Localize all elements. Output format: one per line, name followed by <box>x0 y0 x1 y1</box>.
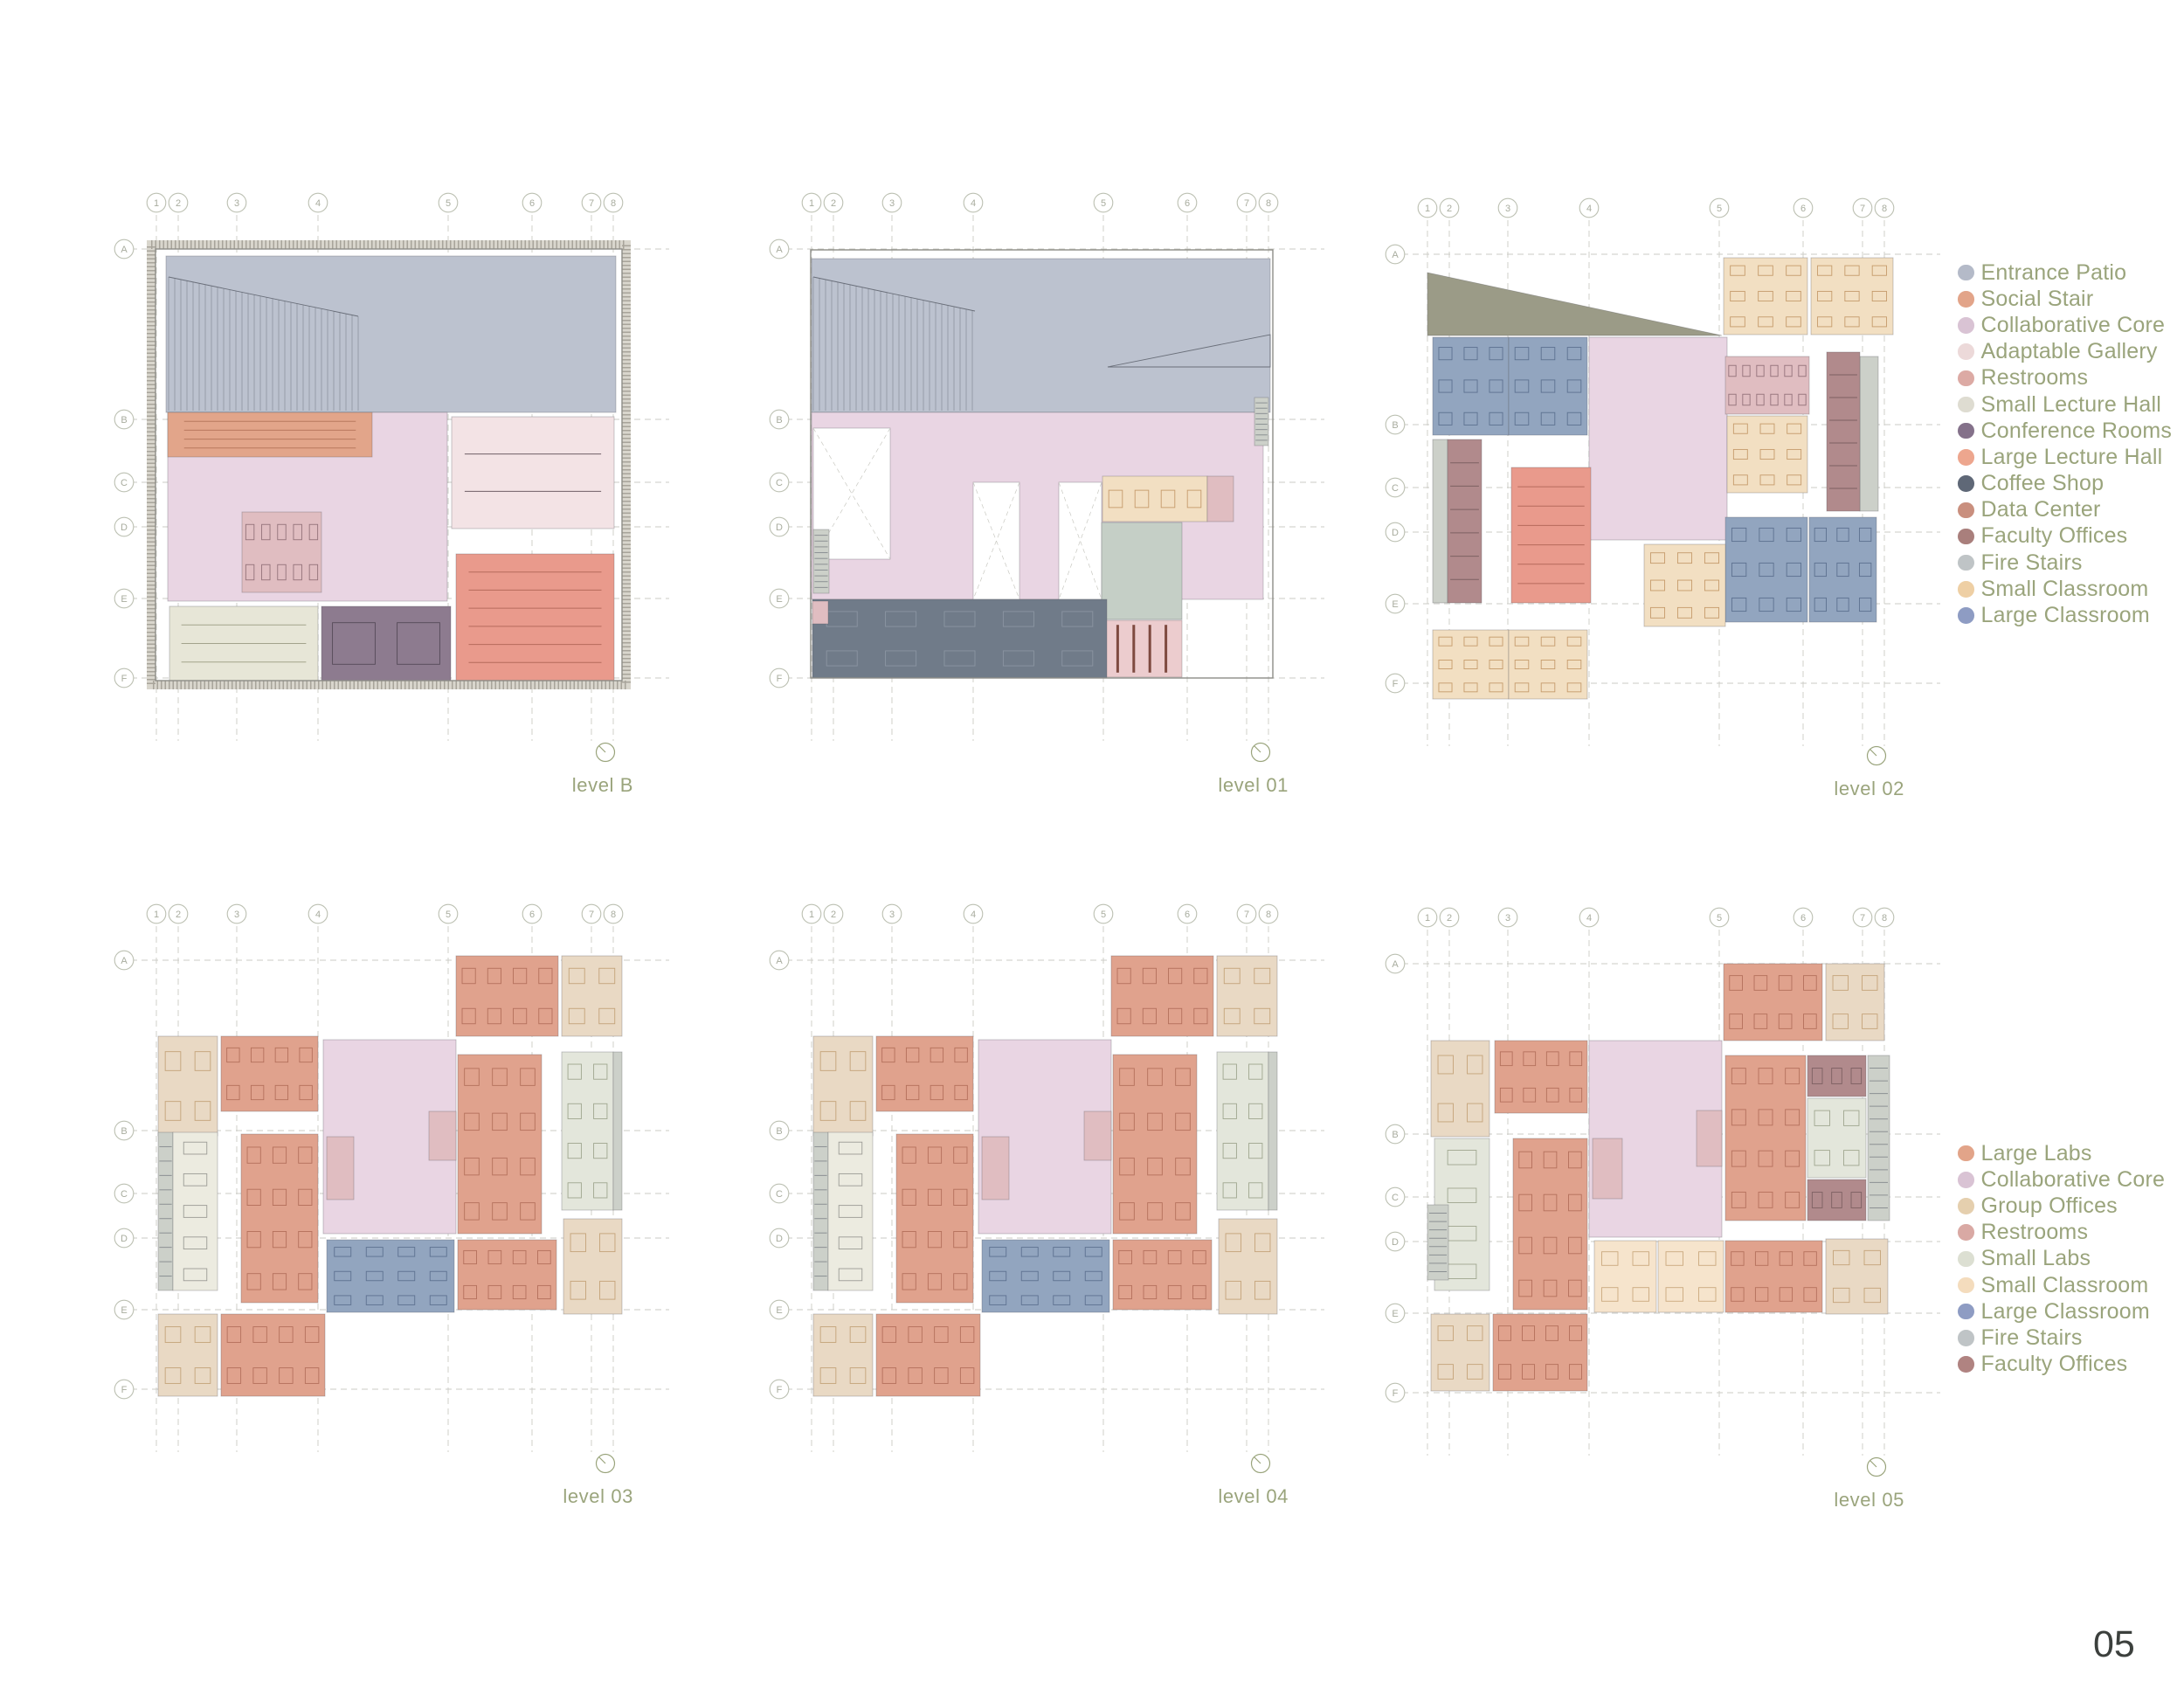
large-labs-color-dot <box>1958 1145 1974 1162</box>
group-offices-zone <box>158 1314 218 1396</box>
restrooms-zone <box>327 1137 354 1200</box>
collaborative-core-color-dot <box>1958 1172 1974 1188</box>
plan-label-level-01: level 01 <box>1218 774 1289 796</box>
faculty-offices-zone <box>1448 439 1482 603</box>
grid-col-label: 6 <box>529 198 535 209</box>
large-classroom-color-dot <box>1958 607 1974 624</box>
grid-col-label: 3 <box>234 910 239 920</box>
large-classroom-zone <box>982 1240 1109 1312</box>
small-classroom-color-dot <box>1958 1277 1974 1294</box>
plan-label-level-05: level 05 <box>1834 1489 1904 1511</box>
small-classroom-zone <box>1433 630 1509 699</box>
group-offices-zone <box>563 1219 622 1314</box>
legend-label: Collaborative Core <box>1981 1169 2166 1191</box>
restrooms-zone <box>982 1137 1009 1200</box>
legend-item-small-classroom: Small Classroom <box>1958 576 2172 602</box>
legend-item-social-stair: Social Stair <box>1958 286 2172 312</box>
north-compass-needle <box>599 1457 605 1463</box>
small-classrooms-zone <box>1102 476 1207 522</box>
legend-item-small-lecture-hall: Small Lecture Hall <box>1958 391 2172 418</box>
grid-col-label: 1 <box>154 910 159 920</box>
large-labs-zone <box>458 1055 542 1234</box>
grid-col-label: 1 <box>1425 913 1430 924</box>
entrance-patio-color-dot <box>1958 265 1974 281</box>
small-classroom-color-dot <box>1958 581 1974 598</box>
legend-label: Adaptable Gallery <box>1981 341 2158 363</box>
legend-item-restrooms: Restrooms <box>1958 365 2172 391</box>
legend-label: Large Classroom <box>1981 605 2150 626</box>
group-offices-zone <box>158 1036 218 1136</box>
large-labs-zone <box>1513 1138 1587 1310</box>
large-classroom-zone <box>1433 337 1509 435</box>
grid-col-label: 5 <box>1717 204 1722 214</box>
grid-col-label: 8 <box>611 910 616 920</box>
legend-label: Collaborative Core <box>1981 315 2166 336</box>
grid-row-label: C <box>1392 1193 1399 1203</box>
fire-stairs-zone <box>813 529 829 593</box>
restrooms-zone <box>1593 1138 1622 1199</box>
grid-col-label: 7 <box>1244 198 1249 209</box>
plan-label-level-02: level 02 <box>1834 778 1904 799</box>
large-labs-zone <box>1725 1055 1806 1221</box>
grid-col-label: 3 <box>1505 913 1510 924</box>
restrooms-color-dot <box>1958 370 1974 387</box>
grid-col-label: 8 <box>1266 910 1271 920</box>
grid-col-label: 1 <box>809 198 814 209</box>
restrooms-zone <box>1725 356 1809 414</box>
group-offices-zone <box>1219 1219 1277 1314</box>
grid-col-label: 4 <box>1586 913 1592 924</box>
small-classroom-zone <box>1724 258 1807 335</box>
collaborative-core-color-dot <box>1958 317 1974 334</box>
roof-wedge-zone <box>1427 273 1722 336</box>
legend-label: Small Classroom <box>1981 1275 2149 1297</box>
legend-label: Entrance Patio <box>1981 262 2127 284</box>
fire-stairs-zone <box>158 1132 173 1290</box>
legend-item-restrooms: Restrooms <box>1958 1220 2165 1246</box>
grid-row-label: E <box>776 594 782 605</box>
legend-label: Fire Stairs <box>1981 552 2083 574</box>
north-compass-needle <box>1870 750 1876 756</box>
legend-label: Large Lecture Hall <box>1981 446 2163 468</box>
grid-row-label: D <box>1392 528 1399 538</box>
grid-row-label: B <box>776 415 782 425</box>
grid-col-label: 1 <box>809 910 814 920</box>
restrooms-zone <box>429 1111 456 1160</box>
grid-col-label: 5 <box>446 910 451 920</box>
large-lecture-hall-zone <box>456 554 614 681</box>
legend-item-large-labs: Large Labs <box>1958 1140 2165 1166</box>
grid-row-label: A <box>1392 959 1399 970</box>
legend-item-fire-stairs: Fire Stairs <box>1958 550 2172 576</box>
legend-label: Faculty Offices <box>1981 1353 2128 1375</box>
legend-label: Faculty Offices <box>1981 525 2128 547</box>
legend-item-data-center: Data Center <box>1958 497 2172 523</box>
grid-row-label: C <box>776 1189 783 1200</box>
floor-plans-canvas: 12345678ABCDEFlevel B12345678ABCDEFlevel… <box>0 0 2184 1688</box>
restrooms-zone <box>1084 1111 1111 1160</box>
grid-row-label: F <box>121 674 128 684</box>
small-classroom-zone <box>1727 416 1807 493</box>
restrooms-zone <box>812 601 828 624</box>
north-compass-needle <box>599 746 605 752</box>
grid-row-label: A <box>1392 250 1399 260</box>
floor-plan-sheet: 12345678ABCDEFlevel B12345678ABCDEFlevel… <box>0 0 2184 1688</box>
large-classroom-zone <box>327 1240 454 1312</box>
legend-lab-levels: Large LabsCollaborative CoreGroup Office… <box>1958 1140 2165 1378</box>
grid-col-label: 8 <box>611 198 616 209</box>
fire-stairs-zone <box>1268 1052 1277 1210</box>
large-labs-zone <box>221 1314 325 1396</box>
grid-col-label: 5 <box>1101 910 1106 920</box>
offices-zone <box>828 1132 873 1290</box>
grid-row-label: B <box>121 415 127 425</box>
large-classroom-zone <box>1509 337 1587 435</box>
legend-item-small-classroom: Small Classroom <box>1958 1272 2165 1298</box>
group-offices-zone <box>1217 956 1277 1036</box>
data-center-zone <box>1102 620 1182 677</box>
legend-item-large-lecture-hall: Large Lecture Hall <box>1958 444 2172 470</box>
legend-item-faculty-offices: Faculty Offices <box>1958 523 2172 550</box>
small-labs-color-dot <box>1958 1251 1974 1268</box>
legend-label: Small Lecture Hall <box>1981 394 2161 416</box>
grid-row-label: E <box>1392 1309 1398 1319</box>
grid-col-label: 7 <box>1860 204 1865 214</box>
conference-rooms-color-dot <box>1958 423 1974 439</box>
legend-label: Large Labs <box>1981 1143 2092 1165</box>
conference-rooms-zone <box>321 606 451 681</box>
grid-col-label: 2 <box>176 198 181 209</box>
grid-col-label: 4 <box>1586 204 1592 214</box>
legend-label: Social Stair <box>1981 288 2094 310</box>
grid-row-label: D <box>121 522 128 533</box>
service-room-zone <box>1102 522 1182 619</box>
grid-col-label: 6 <box>1800 913 1806 924</box>
grid-col-label: 2 <box>176 910 181 920</box>
legend-item-coffee-shop: Coffee Shop <box>1958 471 2172 497</box>
fire-stairs-zone <box>1427 1205 1448 1280</box>
grid-col-label: 5 <box>1101 198 1106 209</box>
entrance-patio-zone <box>812 259 1270 412</box>
grid-row-label: C <box>1392 483 1399 494</box>
legend-item-entrance-patio: Entrance Patio <box>1958 259 2172 286</box>
adaptable-gallery-color-dot <box>1958 343 1974 360</box>
fire-stairs-color-dot <box>1958 555 1974 571</box>
small-labs-zone <box>562 1052 613 1210</box>
coffee-shop-color-dot <box>1958 475 1974 492</box>
large-labs-zone <box>456 956 558 1036</box>
grid-row-label: C <box>121 1189 128 1200</box>
grid-col-label: 7 <box>589 910 594 920</box>
plan-level-05: 12345678ABCDEFlevel 05 <box>1386 908 1940 1511</box>
grid-col-label: 2 <box>831 910 836 920</box>
grid-col-label: 7 <box>1244 910 1249 920</box>
legend-label: Restrooms <box>1981 367 2089 389</box>
large-lecture-hall-color-dot <box>1958 449 1974 466</box>
grid-row-label: E <box>121 594 127 605</box>
grid-col-label: 2 <box>831 198 836 209</box>
grid-col-label: 8 <box>1882 204 1887 214</box>
fire-stairs-zone <box>813 1132 828 1290</box>
large-labs-zone <box>896 1134 973 1303</box>
grid-row-label: C <box>121 478 128 488</box>
grid-row-label: D <box>776 522 783 533</box>
faculty-offices-zone <box>1827 352 1860 511</box>
grid-col-label: 5 <box>446 198 451 209</box>
group-offices-zone <box>562 956 622 1036</box>
legend-item-collaborative-core: Collaborative Core <box>1958 312 2172 338</box>
grid-col-label: 4 <box>315 910 321 920</box>
grid-row-label: F <box>777 1385 783 1395</box>
north-compass-needle <box>1870 1461 1876 1467</box>
plan-level-04: 12345678ABCDEFlevel 04 <box>770 904 1324 1507</box>
grid-col-label: 8 <box>1882 913 1887 924</box>
grid-row-label: D <box>776 1234 783 1244</box>
legend-label: Data Center <box>1981 499 2101 521</box>
fire-stairs-zone <box>1433 439 1448 603</box>
grid-col-label: 3 <box>1505 204 1510 214</box>
small-classroom-zone <box>1509 630 1587 699</box>
restrooms-zone <box>1207 476 1234 522</box>
grid-col-label: 2 <box>1447 204 1452 214</box>
fire-stairs-color-dot <box>1958 1330 1974 1346</box>
legend-upper-levels: Entrance PatioSocial StairCollaborative … <box>1958 259 2172 629</box>
offices-zone <box>173 1132 218 1290</box>
grid-row-label: F <box>1393 1388 1399 1399</box>
large-labs-zone <box>876 1314 980 1396</box>
legend-label: Group Offices <box>1981 1195 2118 1217</box>
page-number: 05 <box>2093 1623 2154 1666</box>
grid-col-label: 4 <box>971 910 976 920</box>
large-classroom-zone <box>1725 517 1807 622</box>
grid-row-label: E <box>1392 599 1398 610</box>
grid-row-label: E <box>776 1305 782 1316</box>
north-compass-needle <box>1254 746 1261 752</box>
large-labs-zone <box>1113 1055 1197 1234</box>
grid-col-label: 8 <box>1266 198 1271 209</box>
small-labs-zone <box>1807 1098 1866 1178</box>
grid-col-label: 4 <box>971 198 976 209</box>
north-compass-needle <box>1254 1457 1261 1463</box>
faculty-offices-zone <box>1807 1180 1866 1221</box>
grid-row-label: F <box>1393 679 1399 689</box>
legend-item-conference-rooms: Conference Rooms <box>1958 418 2172 444</box>
legend-item-faculty-offices: Faculty Offices <box>1958 1352 2165 1378</box>
plan-label-level-b: level B <box>572 774 633 796</box>
grid-col-label: 3 <box>234 198 239 209</box>
grid-col-label: 1 <box>1425 204 1430 214</box>
grid-row-label: B <box>776 1126 782 1137</box>
grid-row-label: A <box>776 956 783 966</box>
legend-label: Fire Stairs <box>1981 1327 2083 1349</box>
grid-row-label: A <box>121 956 128 966</box>
grid-row-label: A <box>121 245 128 255</box>
legend-label: Restrooms <box>1981 1221 2089 1243</box>
grid-row-label: B <box>1392 1130 1398 1140</box>
grid-col-label: 7 <box>1860 913 1865 924</box>
large-classroom-color-dot <box>1958 1304 1974 1320</box>
group-offices-color-dot <box>1958 1198 1974 1214</box>
plan-level-02: 12345678ABCDEFlevel 02 <box>1386 198 1940 799</box>
legend-item-adaptable-gallery: Adaptable Gallery <box>1958 339 2172 365</box>
legend-item-fire-stairs: Fire Stairs <box>1958 1325 2165 1351</box>
legend-item-group-offices: Group Offices <box>1958 1193 2165 1219</box>
small-lecture-hall-color-dot <box>1958 397 1974 413</box>
collaborative-core-zone <box>1589 337 1727 540</box>
large-classroom-zone <box>1809 517 1876 622</box>
legend-label: Conference Rooms <box>1981 420 2173 442</box>
faculty-offices-zone <box>1807 1055 1866 1097</box>
restrooms-color-dot <box>1958 1224 1974 1241</box>
fire-stairs-zone <box>1254 398 1268 446</box>
large-labs-zone <box>241 1134 318 1303</box>
grid-col-label: 7 <box>589 198 594 209</box>
grid-row-label: E <box>121 1305 127 1316</box>
plan-label-level-03: level 03 <box>563 1485 633 1507</box>
grid-col-label: 3 <box>889 910 895 920</box>
grid-row-label: D <box>121 1234 128 1244</box>
large-lecture-hall-zone <box>1511 467 1591 603</box>
grid-row-label: A <box>776 245 783 255</box>
fire-stairs-zone <box>1860 356 1878 511</box>
grid-row-label: C <box>776 478 783 488</box>
grid-row-label: D <box>1392 1237 1399 1248</box>
legend-item-large-classroom: Large Classroom <box>1958 602 2172 628</box>
grid-row-label: F <box>777 674 783 684</box>
grid-col-label: 6 <box>529 910 535 920</box>
grid-row-label: F <box>121 1385 128 1395</box>
legend-label: Large Classroom <box>1981 1301 2150 1323</box>
social-stair-color-dot <box>1958 291 1974 308</box>
grid-col-label: 4 <box>315 198 321 209</box>
plan-level-03: 12345678ABCDEFlevel 03 <box>114 904 669 1507</box>
group-offices-zone <box>1431 1041 1489 1137</box>
grid-col-label: 2 <box>1447 913 1452 924</box>
plan-level-01: 12345678ABCDEFlevel 01 <box>770 193 1324 796</box>
grid-col-label: 1 <box>154 198 159 209</box>
faculty-offices-color-dot <box>1958 1356 1974 1373</box>
legend-item-collaborative-core: Collaborative Core <box>1958 1166 2165 1193</box>
legend-label: Small Labs <box>1981 1248 2091 1269</box>
adaptable-gallery-zone <box>452 417 614 529</box>
small-classroom-zone <box>1644 544 1725 626</box>
fire-stairs-zone <box>613 1052 622 1210</box>
legend-label: Coffee Shop <box>1981 473 2105 495</box>
plan-label-level-04: level 04 <box>1218 1485 1289 1507</box>
grid-col-label: 6 <box>1800 204 1806 214</box>
group-offices-zone <box>813 1036 873 1136</box>
grid-row-label: B <box>121 1126 127 1137</box>
legend-label: Small Classroom <box>1981 578 2149 600</box>
legend-item-large-classroom: Large Classroom <box>1958 1298 2165 1325</box>
grid-col-label: 6 <box>1185 198 1190 209</box>
restrooms-zone <box>1697 1110 1722 1166</box>
grid-col-label: 6 <box>1185 910 1190 920</box>
faculty-offices-color-dot <box>1958 529 1974 545</box>
small-classroom-zone <box>1811 258 1893 335</box>
social-stair-zone <box>168 412 372 457</box>
large-labs-zone <box>1111 956 1213 1036</box>
group-offices-zone <box>813 1314 873 1396</box>
fire-stairs-zone <box>1868 1055 1890 1221</box>
data-center-color-dot <box>1958 502 1974 519</box>
grid-col-label: 3 <box>889 198 895 209</box>
restrooms-zone <box>242 512 321 592</box>
plan-level-b: 12345678ABCDEFlevel B <box>114 193 669 796</box>
small-labs-zone <box>1217 1052 1268 1210</box>
entrance-patio-zone <box>166 256 616 412</box>
legend-item-small-labs: Small Labs <box>1958 1246 2165 1272</box>
grid-col-label: 5 <box>1717 913 1722 924</box>
grid-row-label: B <box>1392 420 1398 431</box>
